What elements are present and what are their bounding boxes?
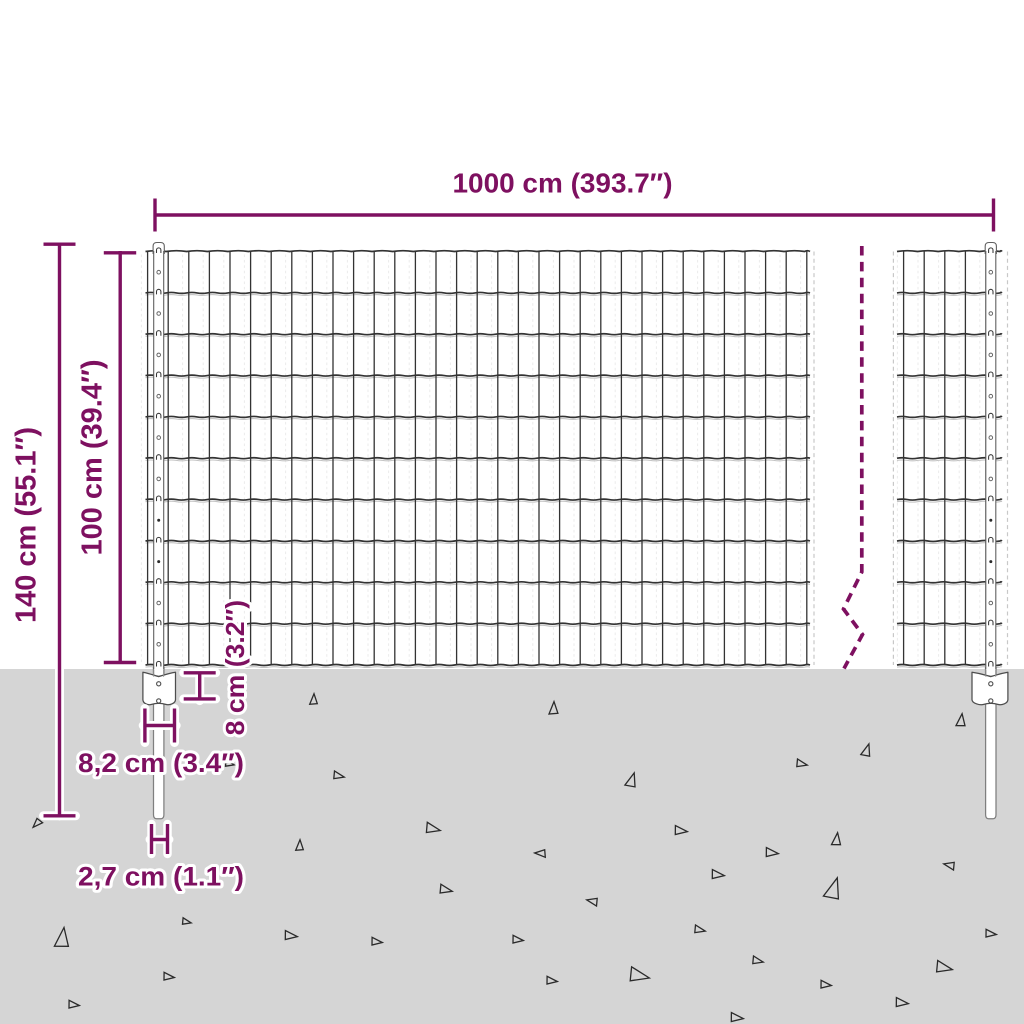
svg-text:8 cm (3.2″): 8 cm (3.2″) xyxy=(220,600,250,736)
svg-text:1000 cm (393.7″): 1000 cm (393.7″) xyxy=(453,168,673,199)
svg-text:100 cm (39.4″): 100 cm (39.4″) xyxy=(77,359,109,555)
svg-text:140 cm (55.1″): 140 cm (55.1″) xyxy=(11,427,43,623)
svg-text:8,2 cm (3.4″): 8,2 cm (3.4″) xyxy=(78,748,244,778)
svg-text:2,7 cm (1.1″): 2,7 cm (1.1″) xyxy=(78,862,244,892)
